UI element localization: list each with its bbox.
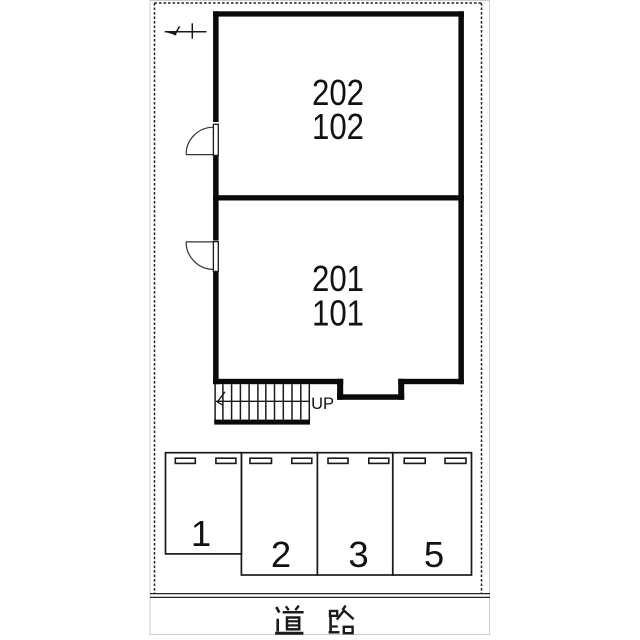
svg-text:5: 5 [424, 534, 444, 575]
svg-text:1: 1 [191, 513, 211, 554]
svg-text:3: 3 [348, 534, 368, 575]
svg-text:2: 2 [271, 534, 291, 575]
svg-text:UP: UP [311, 395, 334, 413]
svg-text:102: 102 [312, 106, 364, 147]
svg-text:101: 101 [312, 293, 364, 334]
